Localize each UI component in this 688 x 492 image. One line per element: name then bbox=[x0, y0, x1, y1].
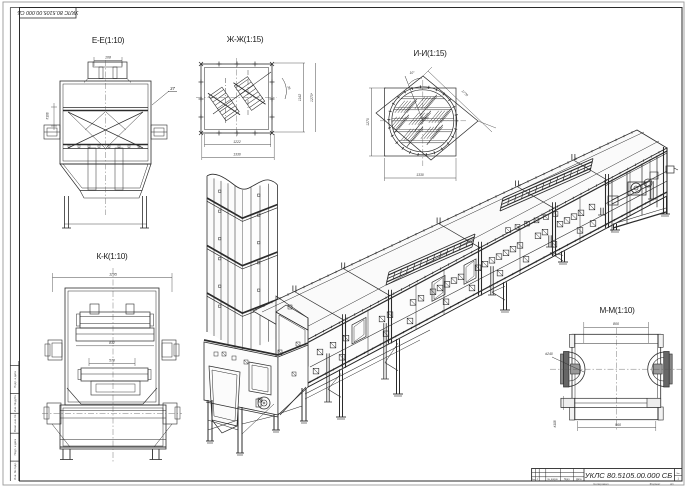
svg-text:832: 832 bbox=[109, 341, 115, 345]
svg-text:Е-Е(1:10): Е-Е(1:10) bbox=[92, 36, 125, 45]
svg-text:Копировал: Копировал bbox=[593, 482, 608, 486]
svg-text:578: 578 bbox=[109, 359, 115, 363]
svg-text:960: 960 bbox=[615, 423, 621, 427]
svg-text:Инв. № дубл.: Инв. № дубл. bbox=[13, 394, 17, 412]
svg-text:УКЛС 80.5105.00.000 СБ: УКЛС 80.5105.00.000 СБ bbox=[584, 471, 673, 480]
svg-text:Дата: Дата bbox=[576, 478, 582, 481]
svg-text:1270*: 1270* bbox=[310, 92, 314, 102]
svg-text:Взам. инв. №: Взам. инв. № bbox=[13, 415, 17, 432]
svg-text:#240: #240 bbox=[545, 352, 553, 356]
svg-text:37: 37 bbox=[170, 86, 175, 91]
svg-text:А(1:85): А(1:85) bbox=[418, 116, 428, 120]
svg-text:1222: 1222 bbox=[233, 140, 241, 144]
svg-text:Подп.: Подп. bbox=[564, 478, 571, 481]
svg-text:УКЛС 80.5105.00.000 СБ: УКЛС 80.5105.00.000 СБ bbox=[17, 9, 79, 15]
svg-text:К-К(1:10): К-К(1:10) bbox=[97, 252, 129, 261]
svg-text:1330: 1330 bbox=[416, 173, 424, 177]
svg-text:#108: #108 bbox=[46, 112, 50, 119]
svg-text:108: 108 bbox=[105, 56, 111, 60]
svg-text:Ж-Ж(1:15): Ж-Ж(1:15) bbox=[227, 35, 264, 44]
svg-text:1330: 1330 bbox=[233, 153, 241, 157]
svg-text:№ докум.: № докум. bbox=[548, 478, 559, 481]
svg-text:#108: #108 bbox=[553, 420, 557, 427]
svg-text:Изм: Изм bbox=[531, 479, 536, 481]
svg-text:А1: А1 bbox=[670, 482, 674, 486]
svg-text:И-И(1:15): И-И(1:15) bbox=[413, 49, 447, 58]
svg-text:800: 800 bbox=[613, 322, 619, 326]
svg-text:10°: 10° bbox=[410, 71, 416, 75]
svg-text:Формат: Формат bbox=[650, 482, 661, 486]
svg-text:1270: 1270 bbox=[366, 118, 370, 126]
svg-text:Подп. и дата: Подп. и дата bbox=[13, 371, 17, 388]
svg-text:Лист: Лист bbox=[676, 473, 680, 475]
svg-text:Инв. № подл.: Инв. № подл. bbox=[13, 462, 17, 480]
svg-text:Подп. и дата: Подп. и дата bbox=[13, 438, 17, 455]
svg-text:1162: 1162 bbox=[298, 94, 302, 101]
svg-text:М-М(1:10): М-М(1:10) bbox=[599, 306, 635, 315]
